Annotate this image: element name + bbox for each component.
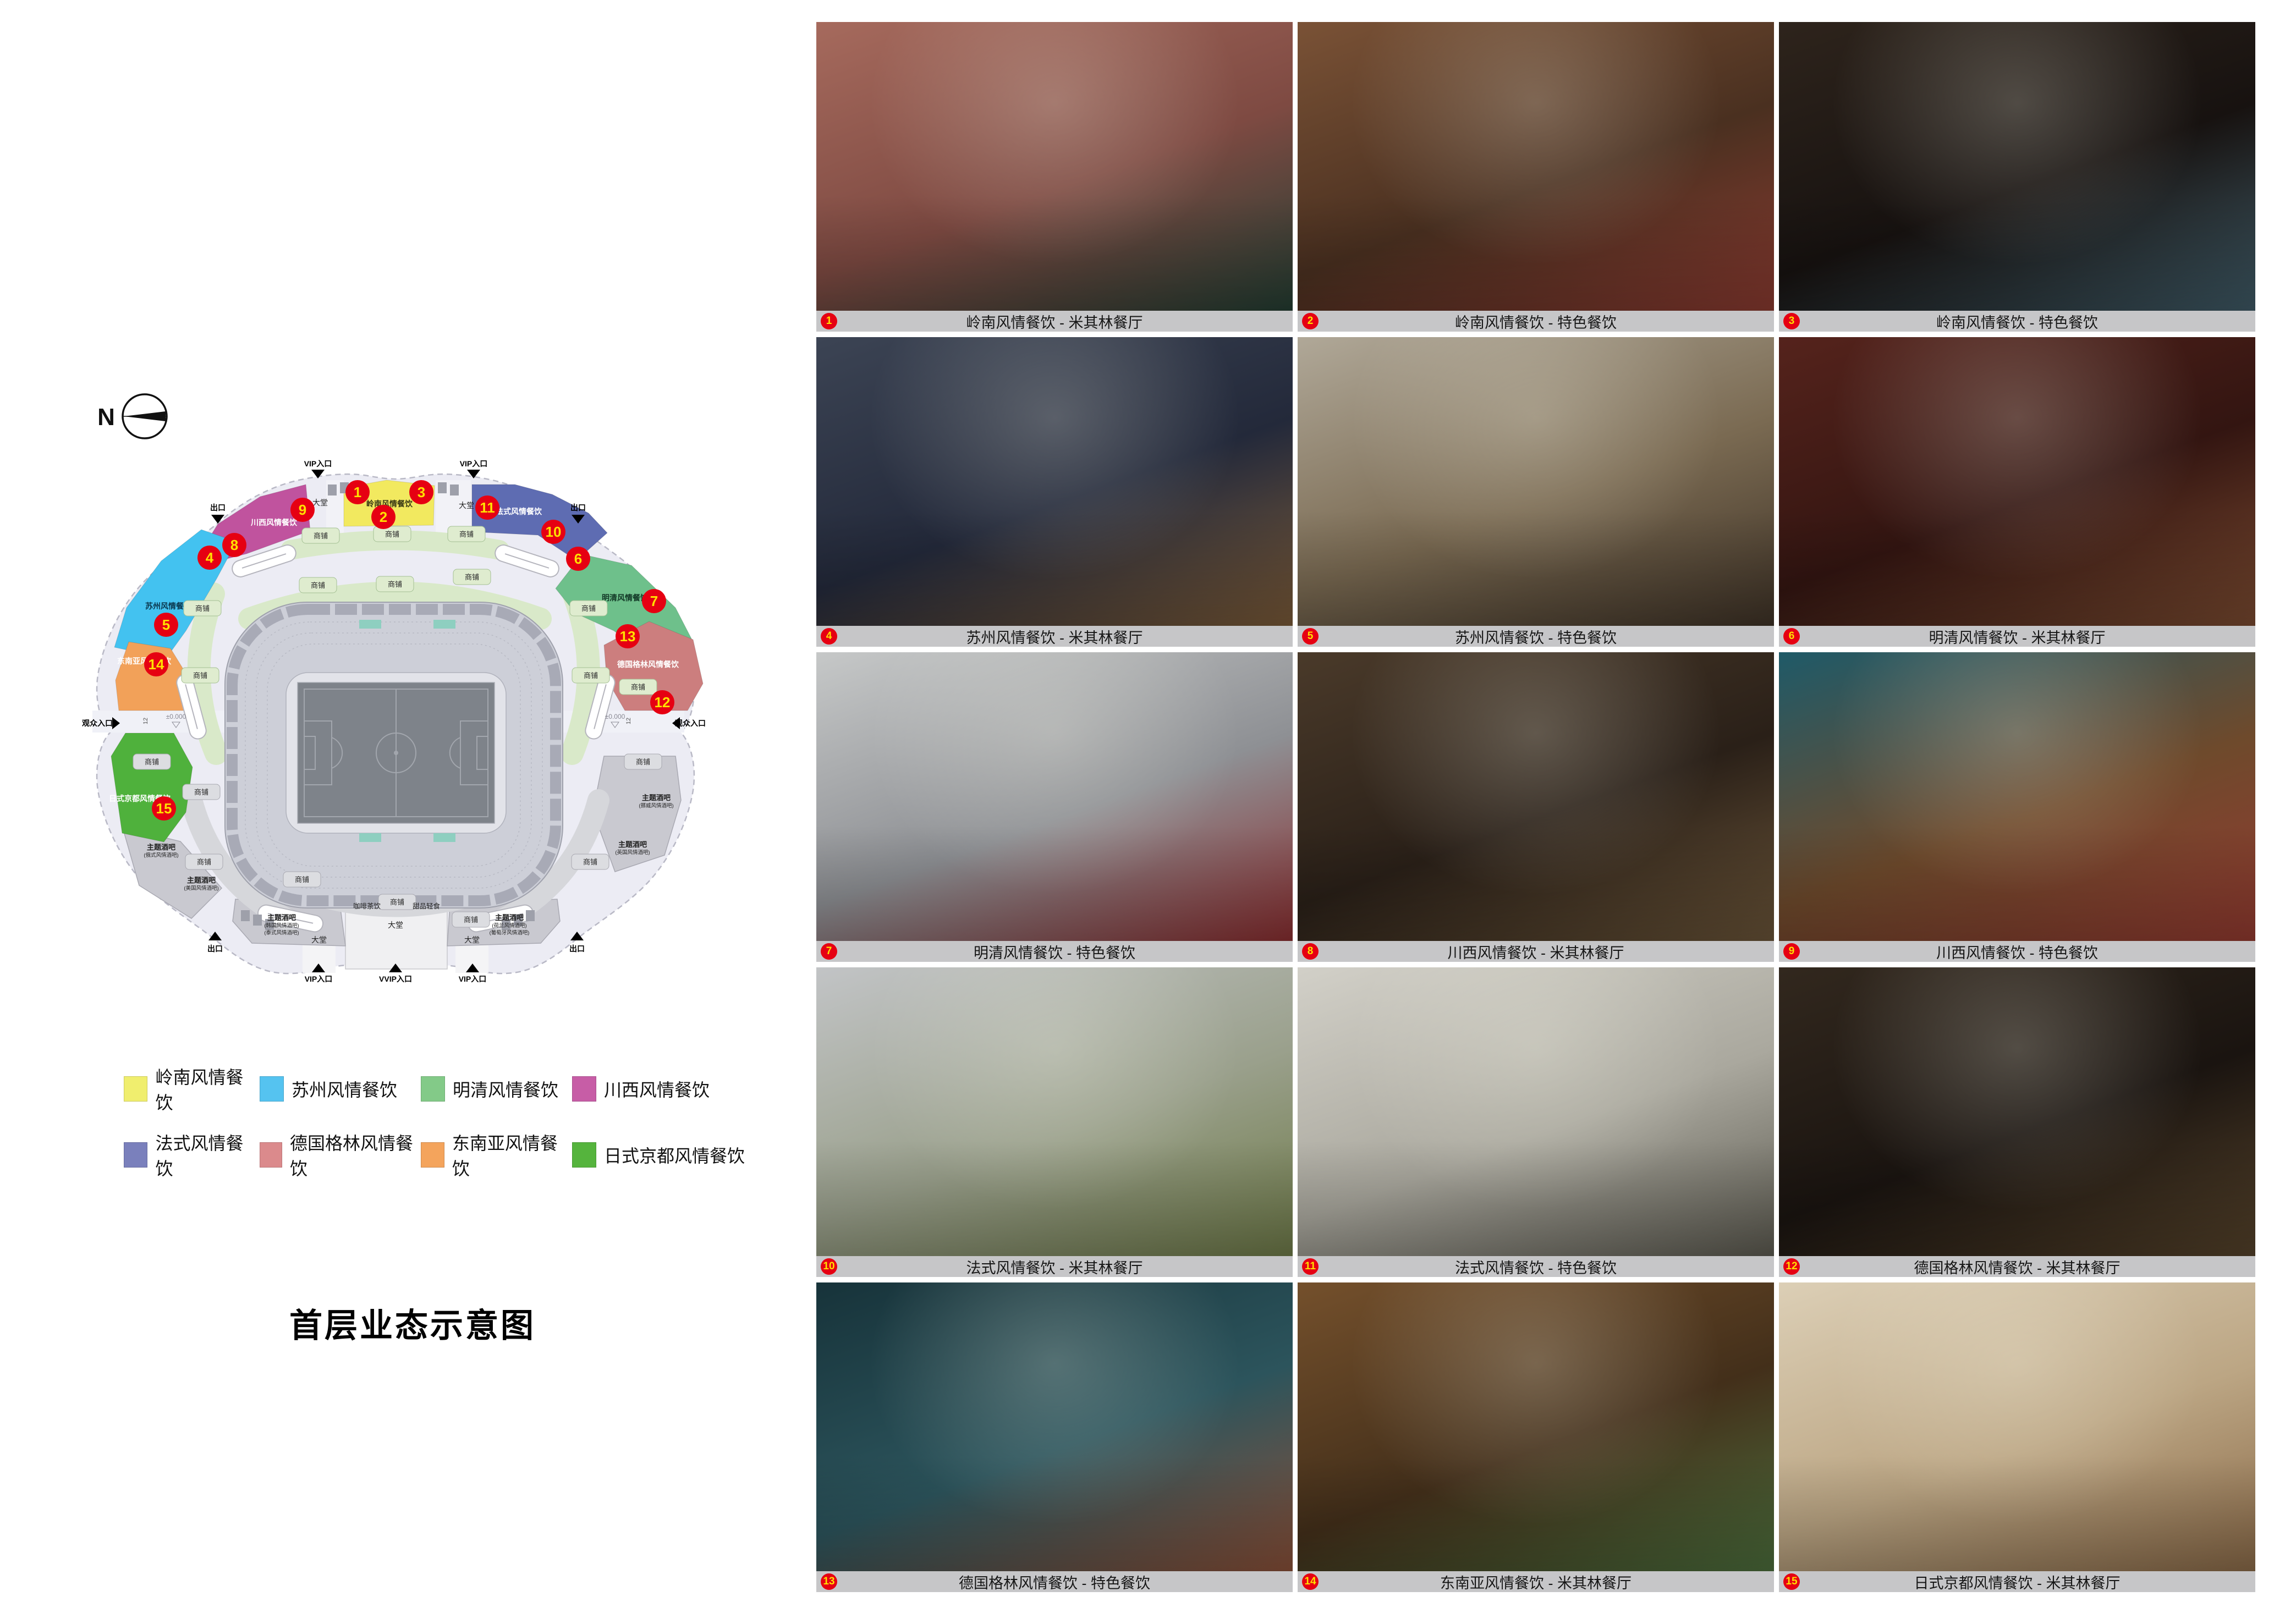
legend-item-2: 苏州风情餐饮 (260, 1064, 421, 1114)
entrance-label-11: VIP入口 (459, 975, 487, 983)
photo-caption-6: 6明清风情餐饮 - 米其林餐厅 (1779, 626, 2255, 647)
entrance-label-6: 观众入口 (675, 719, 706, 728)
legend-item-3: 明清风情餐饮 (421, 1064, 572, 1114)
hall-label-3: 大堂 (311, 935, 327, 944)
photo-caption-9: 9川西风情餐饮 - 特色餐饮 (1779, 941, 2255, 962)
caption-number-badge-12: 12 (1783, 1258, 1800, 1275)
caption-label-12: 德国格林风情餐饮 - 米其林餐厅 (1914, 1256, 2121, 1278)
shop-label-6: 商铺 (465, 573, 479, 581)
shop-label-14: 商铺 (197, 858, 211, 866)
photo-caption-8: 8川西风情餐饮 - 米其林餐厅 (1298, 941, 1774, 962)
legend-item-8: 日式京都风情餐饮 (572, 1130, 745, 1180)
theme-bar-label-4: 主题酒吧(荷兰风情酒吧)(葡萄牙风情酒吧) (490, 913, 530, 936)
photo-caption-7: 7明清风情餐饮 - 特色餐饮 (816, 941, 1293, 962)
theme-bar-label-1: 主题酒吧(俄式风情酒吧) (144, 843, 178, 858)
shop-label-15: 商铺 (295, 876, 309, 884)
photo-caption-3: 3岭南风情餐饮 - 特色餐饮 (1779, 311, 2255, 332)
north-label: N (97, 404, 115, 431)
photo-caption-13: 13德国格林风情餐饮 - 特色餐饮 (816, 1571, 1293, 1592)
caption-number-badge-3: 3 (1783, 313, 1800, 329)
shop-label-4: 商铺 (311, 581, 325, 590)
shop-label-10: 商铺 (584, 671, 598, 680)
restaurant-photo-1 (816, 22, 1293, 311)
legend-label-7: 东南亚风情餐饮 (452, 1130, 572, 1180)
legend: 岭南风情餐饮苏州风情餐饮明清风情餐饮川西风情餐饮法式风情餐饮德国格林风情餐饮东南… (124, 1064, 745, 1180)
caption-label-9: 川西风情餐饮 - 特色餐饮 (1936, 941, 2098, 962)
caption-label-10: 法式风情餐饮 - 米其林餐厅 (966, 1256, 1143, 1278)
stadium-bowl (225, 602, 563, 908)
map-marker-number-13: 13 (620, 628, 636, 645)
caption-number-badge-8: 8 (1302, 943, 1319, 960)
legend-swatch-2 (260, 1076, 284, 1102)
caption-label-7: 明清风情餐饮 - 特色餐饮 (974, 941, 1135, 962)
restaurant-photo-14 (1298, 1282, 1774, 1571)
map-marker-number-1: 1 (354, 484, 361, 500)
legend-label-2: 苏州风情餐饮 (292, 1076, 397, 1102)
caption-number-badge-5: 5 (1302, 628, 1319, 645)
stadium-floorplan-map: N 川西风情餐饮岭南风情餐饮法式风情餐 (32, 377, 741, 1004)
caption-number-badge-4: 4 (821, 628, 837, 645)
caption-label-6: 明清风情餐饮 - 米其林餐厅 (1929, 626, 2106, 647)
shop-label-12: 商铺 (145, 758, 159, 766)
shop-label-1: 商铺 (314, 532, 328, 540)
cafe-label-1: 咖啡茶饮 (353, 902, 381, 910)
shop-label-2: 商铺 (385, 530, 399, 538)
caption-label-1: 岭南风情餐饮 - 米其林餐厅 (966, 311, 1143, 332)
zone-label-chuanxi: 川西风情餐饮 (250, 518, 298, 527)
photo-caption-4: 4苏州风情餐饮 - 米其林餐厅 (816, 626, 1293, 647)
legend-label-3: 明清风情餐饮 (453, 1076, 558, 1102)
caption-number-badge-14: 14 (1302, 1573, 1319, 1590)
restaurant-photo-8 (1298, 652, 1774, 941)
restaurant-photo-3 (1779, 22, 2255, 311)
legend-label-8: 日式京都风情餐饮 (604, 1142, 745, 1168)
page-title: 首层业态示意图 (259, 1299, 567, 1347)
shop-label-13: 商铺 (194, 788, 208, 796)
caption-number-badge-11: 11 (1302, 1258, 1319, 1275)
photo-caption-11: 11法式风情餐饮 - 特色餐饮 (1298, 1256, 1774, 1277)
legend-swatch-6 (260, 1142, 282, 1168)
map-marker-number-10: 10 (546, 524, 562, 540)
hall-label-2: 大堂 (459, 501, 474, 510)
entrance-label-4: 出口 (570, 503, 586, 512)
map-marker-number-14: 14 (149, 656, 164, 673)
shop-label-18: 商铺 (583, 858, 597, 866)
legend-label-1: 岭南风情餐饮 (155, 1064, 260, 1114)
legend-label-5: 法式风情餐饮 (155, 1130, 260, 1180)
caption-label-3: 岭南风情餐饮 - 特色餐饮 (1936, 311, 2098, 332)
dimension-label-2: 12 (625, 718, 632, 724)
entrance-label-7: 出口 (207, 944, 223, 953)
caption-number-badge-1: 1 (821, 313, 837, 329)
caption-label-4: 苏州风情餐饮 - 米其林餐厅 (966, 626, 1143, 647)
legend-item-5: 法式风情餐饮 (124, 1130, 260, 1180)
gallery-cell-12: 12德国格林风情餐饮 - 米其林餐厅 (1779, 967, 2255, 1277)
legend-swatch-5 (124, 1142, 147, 1168)
map-marker-number-15: 15 (156, 800, 172, 817)
gallery-cell-3: 3岭南风情餐饮 - 特色餐饮 (1779, 22, 2255, 332)
map-marker-number-12: 12 (655, 694, 671, 711)
entrance-label-2: VIP入口 (460, 459, 488, 468)
gallery-cell-15: 15日式京都风情餐饮 - 米其林餐厅 (1779, 1282, 2255, 1592)
gallery-cell-8: 8川西风情餐饮 - 米其林餐厅 (1298, 652, 1774, 962)
photo-caption-15: 15日式京都风情餐饮 - 米其林餐厅 (1779, 1571, 2255, 1592)
caption-label-2: 岭南风情餐饮 - 特色餐饮 (1455, 311, 1617, 332)
restaurant-photo-6 (1779, 337, 2255, 626)
legend-swatch-7 (421, 1142, 444, 1168)
legend-label-6: 德国格林风情餐饮 (290, 1130, 421, 1180)
photo-caption-12: 12德国格林风情餐饮 - 米其林餐厅 (1779, 1256, 2255, 1277)
caption-label-8: 川西风情餐饮 - 米其林餐厅 (1448, 941, 1624, 962)
caption-label-14: 东南亚风情餐饮 - 米其林餐厅 (1440, 1571, 1632, 1593)
gallery-cell-10: 10法式风情餐饮 - 米其林餐厅 (816, 967, 1293, 1277)
north-arrow-needle (124, 411, 166, 421)
gallery-cell-2: 2岭南风情餐饮 - 特色餐饮 (1298, 22, 1774, 332)
restaurant-photo-2 (1298, 22, 1774, 311)
map-marker-number-7: 7 (650, 593, 658, 609)
legend-item-1: 岭南风情餐饮 (124, 1064, 260, 1114)
photo-caption-2: 2岭南风情餐饮 - 特色餐饮 (1298, 311, 1774, 332)
gallery-cell-5: 5苏州风情餐饮 - 特色餐饮 (1298, 337, 1774, 647)
north-arrow: N (97, 394, 167, 438)
caption-label-5: 苏州风情餐饮 - 特色餐饮 (1455, 626, 1617, 647)
restaurant-photo-13 (816, 1282, 1293, 1571)
legend-swatch-1 (124, 1076, 147, 1102)
hall-label-4: 大堂 (388, 921, 403, 929)
entrance-label-1: VIP入口 (304, 459, 332, 468)
caption-number-badge-15: 15 (1783, 1573, 1800, 1590)
map-marker-number-8: 8 (230, 537, 238, 553)
gallery-cell-13: 13德国格林风情餐饮 - 特色餐饮 (816, 1282, 1293, 1592)
caption-number-badge-2: 2 (1302, 313, 1319, 329)
shop-label-3: 商铺 (459, 530, 474, 538)
photo-caption-5: 5苏州风情餐饮 - 特色餐饮 (1298, 626, 1774, 647)
caption-number-badge-10: 10 (821, 1258, 837, 1275)
zone-label-fashi: 法式风情餐饮 (496, 507, 542, 516)
theme-bar-label-6: 主题酒吧(挪威风情酒吧) (639, 794, 673, 809)
shop-label-9: 商铺 (581, 604, 596, 613)
caption-number-badge-7: 7 (821, 943, 837, 960)
map-marker-number-5: 5 (162, 616, 170, 633)
gallery-cell-6: 6明清风情餐饮 - 米其林餐厅 (1779, 337, 2255, 647)
legend-item-7: 东南亚风情餐饮 (421, 1130, 572, 1180)
cafe-label-2: 甜品轻食 (413, 902, 441, 910)
map-marker-number-2: 2 (380, 509, 387, 525)
caption-number-badge-13: 13 (821, 1573, 837, 1590)
legend-label-4: 川西风情餐饮 (604, 1076, 710, 1102)
theme-bar-label-5: 主题酒吧(英国风情酒吧) (615, 840, 650, 856)
restaurant-photo-10 (816, 967, 1293, 1256)
shop-label-19: 商铺 (636, 758, 650, 766)
map-marker-number-3: 3 (418, 484, 425, 500)
restaurant-photo-15 (1779, 1282, 2255, 1571)
shop-label-11: 商铺 (631, 683, 645, 691)
legend-swatch-4 (572, 1076, 596, 1102)
legend-swatch-8 (572, 1142, 596, 1168)
photo-caption-10: 10法式风情餐饮 - 米其林餐厅 (816, 1256, 1293, 1277)
theme-bar-label-3: 主题酒吧(韩国风情酒吧)(泰式风情酒吧) (264, 913, 299, 936)
entrance-label-9: VIP入口 (305, 975, 333, 983)
restaurant-photo-5 (1298, 337, 1774, 626)
photo-caption-1: 1岭南风情餐饮 - 米其林餐厅 (816, 311, 1293, 332)
entrance-label-10: VVIP入口 (379, 975, 412, 983)
shop-label-16: 商铺 (390, 898, 404, 906)
gallery-cell-1: 1岭南风情餐饮 - 米其林餐厅 (816, 22, 1293, 332)
hall-label-1: 大堂 (312, 498, 328, 507)
map-marker-number-4: 4 (206, 549, 214, 566)
gallery-cell-4: 4苏州风情餐饮 - 米其林餐厅 (816, 337, 1293, 647)
gallery-cell-11: 11法式风情餐饮 - 特色餐饮 (1298, 967, 1774, 1277)
photo-gallery: 1岭南风情餐饮 - 米其林餐厅2岭南风情餐饮 - 特色餐饮3岭南风情餐饮 - 特… (816, 22, 2255, 1592)
caption-number-badge-6: 6 (1783, 628, 1800, 645)
elevation-label-1: ±0.000 (166, 713, 186, 720)
caption-label-13: 德国格林风情餐饮 - 特色餐饮 (959, 1571, 1150, 1593)
caption-number-badge-9: 9 (1783, 943, 1800, 960)
restaurant-photo-7 (816, 652, 1293, 941)
map-marker-number-6: 6 (574, 550, 582, 567)
dimension-label-1: 12 (142, 718, 149, 724)
restaurant-photo-12 (1779, 967, 2255, 1256)
entrance-label-5: 观众入口 (82, 719, 113, 728)
shop-label-7: 商铺 (195, 604, 210, 613)
entrance-label-3: 出口 (210, 503, 226, 512)
legend-swatch-3 (421, 1076, 445, 1102)
legend-item-6: 德国格林风情餐饮 (260, 1130, 421, 1180)
hall-label-5: 大堂 (464, 935, 480, 944)
legend-item-4: 川西风情餐饮 (572, 1064, 745, 1114)
map-marker-number-11: 11 (480, 499, 495, 516)
caption-label-15: 日式京都风情餐饮 - 米其林餐厅 (1914, 1571, 2121, 1593)
shop-label-17: 商铺 (464, 916, 478, 924)
zone-label-deguo: 德国格林风情餐饮 (617, 660, 679, 669)
elevation-label-2: ±0.000 (605, 713, 625, 720)
restaurant-photo-4 (816, 337, 1293, 626)
caption-label-11: 法式风情餐饮 - 特色餐饮 (1455, 1256, 1617, 1278)
restaurant-photo-11 (1298, 967, 1774, 1256)
gallery-cell-14: 14东南亚风情餐饮 - 米其林餐厅 (1298, 1282, 1774, 1592)
shop-label-8: 商铺 (193, 671, 207, 680)
theme-bar-label-2: 主题酒吧(美国风情酒吧) (184, 876, 218, 891)
entrance-label-8: 出口 (569, 944, 585, 953)
gallery-cell-7: 7明清风情餐饮 - 特色餐饮 (816, 652, 1293, 962)
gallery-cell-9: 9川西风情餐饮 - 特色餐饮 (1779, 652, 2255, 962)
zone-label-mingqing: 明清风情餐饮 (602, 593, 649, 602)
shop-label-5: 商铺 (388, 580, 402, 588)
map-marker-number-9: 9 (299, 502, 306, 518)
presentation-page: N 川西风情餐饮岭南风情餐饮法式风情餐 (0, 0, 2274, 1624)
restaurant-photo-9 (1779, 652, 2255, 941)
photo-caption-14: 14东南亚风情餐饮 - 米其林餐厅 (1298, 1571, 1774, 1592)
